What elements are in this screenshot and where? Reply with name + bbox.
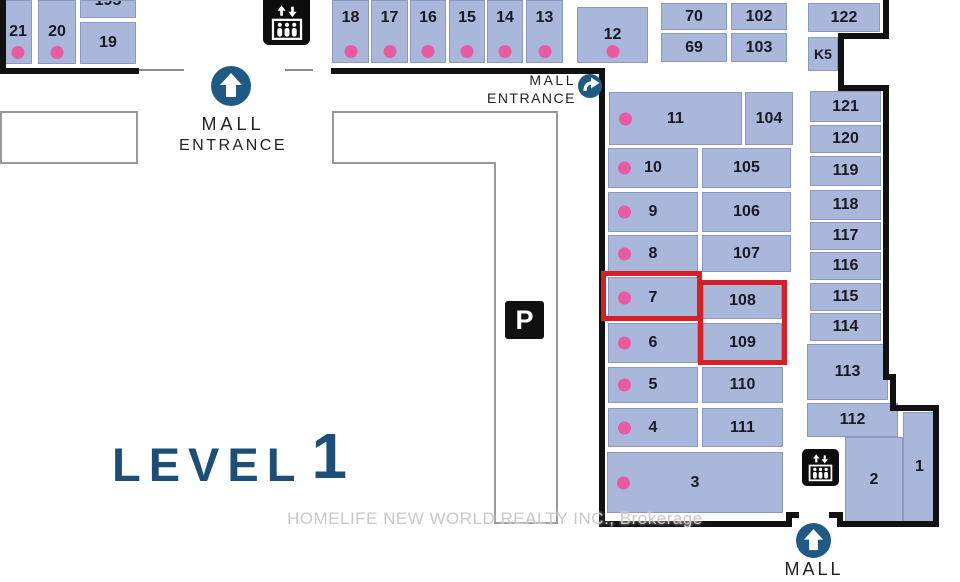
unit-4: 4 [608,408,698,447]
unit-3: 3 [607,452,783,513]
parking-label: P [515,305,533,336]
room-outline [1,112,137,163]
level-label: LEVEL 1 [112,424,347,488]
unit-dot [618,162,631,175]
unit-label: 19 [99,34,117,52]
unit-116: 116 [810,252,881,280]
entrance-line1: MALL [153,113,313,136]
unit-k5: K5 [808,37,838,71]
unit-label: 18 [342,9,360,27]
entrance-line2: ENTRANCE [153,136,313,156]
unit-label: 2 [870,471,879,489]
unit-label: 105 [733,159,760,177]
unit-label: 10 [644,159,662,177]
unit-5: 5 [608,367,698,403]
unit-label: 9 [649,203,658,221]
unit-dot [618,379,631,392]
unit-6: 6 [608,323,698,363]
unit-label: 16 [419,9,437,27]
mall-floor-plan: 21 20 195 19 18 17 16 15 14 13 12 70 102… [0,0,960,582]
unit-dot [383,45,396,58]
unit-12: 12 [577,7,648,63]
unit-16: 16 [410,0,446,63]
unit-14: 14 [487,0,523,63]
unit-120: 120 [810,125,881,153]
arrow-up-circle-icon [796,523,831,558]
unit-111: 111 [702,408,783,447]
mall-entrance-bottom: MALL [778,558,850,581]
unit-dot [618,337,631,350]
unit-110: 110 [702,367,783,403]
unit-label: 102 [746,8,773,26]
unit-dot [618,247,631,260]
mall-entrance-top-left: MALL ENTRANCE [153,113,313,156]
level-number: 1 [311,424,347,488]
entrance-line1: MALL [778,558,850,581]
entrance-line2: ENTRANCE [430,90,576,108]
unit-70: 70 [661,3,727,30]
unit-dot [344,45,357,58]
entrance-line1: MALL [430,72,576,90]
unit-label: 195 [95,0,122,10]
unit-label: 15 [458,9,476,27]
unit-104: 104 [745,92,793,145]
unit-112: 112 [807,403,898,437]
unit-label: 121 [832,98,859,116]
unit-118: 118 [810,190,881,220]
elevator-glyph [267,4,307,42]
unit-label: 20 [48,23,66,41]
unit-69: 69 [661,33,727,62]
elevator-glyph [805,453,836,483]
unit-103: 103 [731,33,787,62]
unit-label: 106 [733,203,760,221]
unit-dot [538,45,551,58]
unit-label: 5 [649,376,658,394]
unit-dot [617,476,630,489]
unit-122: 122 [808,3,880,32]
unit-107: 107 [702,235,791,272]
arrow-right-circle-icon [578,74,602,98]
unit-label: 13 [536,9,554,27]
elevator-icon [263,0,310,45]
unit-dot [51,46,64,59]
unit-15: 15 [449,0,485,63]
unit-21: 21 [4,0,32,64]
unit-dot [499,45,512,58]
unit-2: 2 [845,437,903,522]
unit-label: 113 [835,363,861,381]
unit-113: 113 [807,344,888,400]
unit-17: 17 [371,0,408,63]
unit-label: 107 [733,245,760,263]
unit-label: 12 [604,26,622,44]
unit-label: 120 [832,130,859,148]
unit-114: 114 [810,313,881,341]
unit-label: 1 [915,458,924,476]
unit-18: 18 [332,0,369,63]
unit-label: 11 [667,110,684,128]
unit-102: 102 [731,3,787,30]
arrow-up-circle-icon [211,66,251,106]
unit-label: 115 [833,288,859,306]
unit-label: 110 [730,376,756,394]
highlight-unit-7 [601,271,702,321]
unit-9: 9 [608,192,698,232]
unit-115: 115 [810,283,881,311]
parking-sign: P [505,301,544,339]
unit-label: 112 [840,411,866,429]
unit-label: 122 [831,9,858,27]
level-word: LEVEL [112,441,303,488]
unit-dot [606,45,619,58]
unit-106: 106 [702,192,791,232]
unit-20: 20 [38,0,76,64]
unit-dot [12,46,25,59]
unit-dot [618,421,631,434]
unit-121: 121 [810,91,881,122]
mall-entrance-top-right: MALL ENTRANCE [430,72,576,107]
unit-label: 4 [649,419,658,437]
unit-dot [461,45,474,58]
unit-dot [422,45,435,58]
unit-label: 104 [756,110,783,128]
unit-label: 6 [649,334,658,352]
unit-195: 195 [80,0,136,18]
unit-13: 13 [526,0,563,63]
unit-label: 118 [833,196,859,214]
unit-label: 17 [381,9,399,27]
unit-117: 117 [810,222,881,250]
unit-8: 8 [608,235,698,272]
unit-105: 105 [702,148,791,188]
elevator-icon [802,449,839,486]
unit-dot [619,112,632,125]
highlight-units-108-109 [698,280,787,365]
unit-1: 1 [903,412,936,522]
unit-label: 119 [833,162,859,180]
unit-label: K5 [814,46,832,62]
unit-19: 19 [80,22,136,64]
unit-label: 114 [833,318,859,336]
unit-label: 117 [833,227,859,245]
brokerage-watermark: HOMELIFE NEW WORLD REALTY INC., Brokerag… [287,509,703,529]
unit-label: 8 [649,245,658,263]
unit-dot [618,206,631,219]
unit-label: 14 [496,9,514,27]
unit-label: 21 [9,23,27,41]
unit-label: 69 [685,39,703,57]
unit-label: 111 [730,419,755,437]
unit-label: 3 [691,474,700,492]
unit-10: 10 [608,148,698,188]
unit-11: 11 [609,92,742,145]
unit-label: 116 [833,257,859,275]
unit-119: 119 [810,156,881,186]
unit-label: 70 [685,8,703,26]
unit-label: 103 [746,39,773,57]
